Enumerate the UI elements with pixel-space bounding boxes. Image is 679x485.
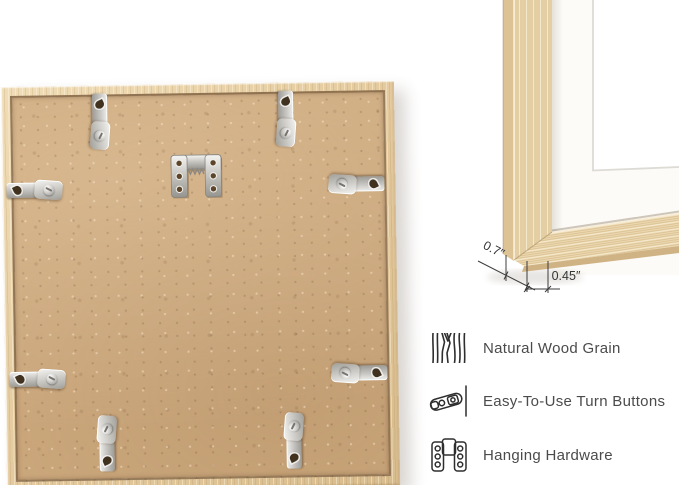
turn-button-bottom-left	[96, 415, 117, 471]
feature-row-wood-grain: Natural Wood Grain	[427, 326, 679, 370]
keyhole-plate	[9, 371, 40, 386]
turn-button-left-lower	[9, 368, 65, 389]
product-image: 0.7″ 0.45″ Natural Wood Grain	[0, 0, 679, 485]
wood-grain-icon	[427, 333, 471, 363]
turn-button-icon	[427, 383, 471, 419]
screw-icon	[101, 423, 112, 434]
mat-shadow	[552, 0, 563, 233]
keyhole-plate	[6, 182, 37, 197]
turn-button-right-upper	[328, 174, 384, 195]
turn-button-top-left	[90, 93, 111, 149]
screw-icon	[46, 373, 57, 384]
screw-icon	[288, 420, 299, 431]
sawtooth-hanger	[170, 154, 223, 199]
turn-button-right-lower	[331, 363, 387, 384]
feature-row-hanging-hardware: Hanging Hardware	[427, 433, 679, 477]
face-width-dimension-label: 0.45″	[552, 269, 581, 283]
turn-button-left-upper	[6, 179, 62, 200]
feature-row-turn-buttons: Easy-To-Use Turn Buttons	[427, 379, 679, 423]
hanging-hardware-icon	[427, 437, 471, 473]
frame-side-face	[503, 0, 514, 261]
turn-button-top-right	[276, 90, 297, 146]
feature-label: Natural Wood Grain	[483, 340, 621, 357]
frame-vertical-rail	[514, 0, 552, 260]
feature-label: Easy-To-Use Turn Buttons	[483, 393, 665, 410]
backing-board	[10, 90, 391, 482]
turn-button-bottom-right	[283, 412, 304, 468]
screw-icon	[43, 184, 54, 195]
keyhole-plate	[92, 93, 107, 124]
keyhole-plate	[278, 91, 293, 122]
frame-corner-view: 0.7″ 0.45″	[440, 0, 679, 300]
feature-list: Natural Wood Grain Easy-To-Use Turn Butt…	[427, 322, 679, 485]
photo-opening	[594, 0, 679, 170]
frame-back-view	[1, 81, 400, 485]
feature-label: Hanging Hardware	[483, 447, 613, 464]
